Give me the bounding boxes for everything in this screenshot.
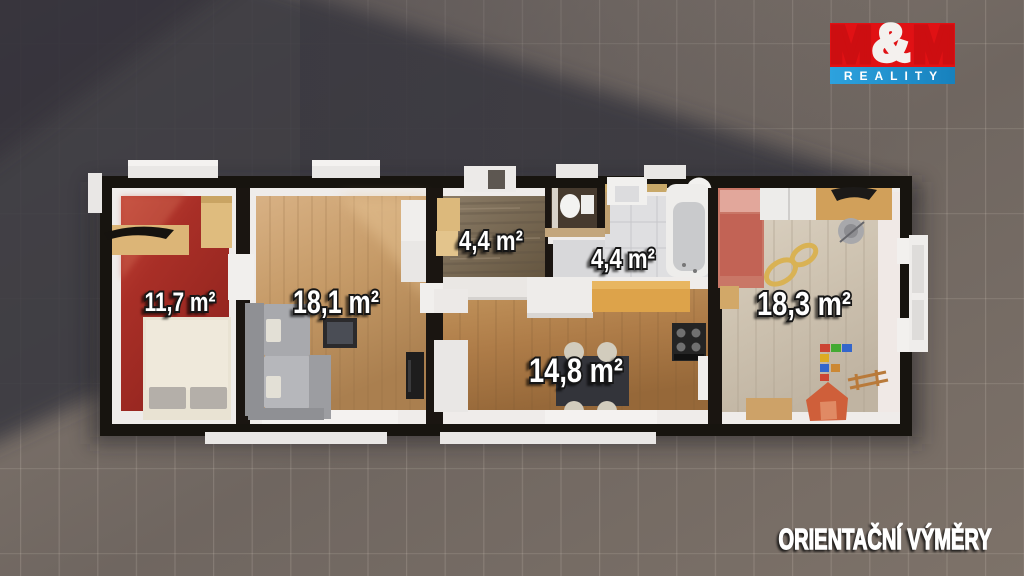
svg-text:14,8 m²: 14,8 m² — [529, 352, 623, 390]
svg-text:18,3 m²: 18,3 m² — [757, 285, 851, 322]
svg-text:ORIENTAČNÍ VÝMĚRY: ORIENTAČNÍ VÝMĚRY — [779, 522, 992, 556]
svg-text:M: M — [830, 16, 872, 73]
svg-text:&: & — [872, 15, 910, 73]
svg-text:4,4 m²: 4,4 m² — [459, 225, 523, 256]
svg-text:4,4 m²: 4,4 m² — [591, 243, 655, 274]
svg-text:18,1 m²: 18,1 m² — [293, 284, 379, 320]
svg-text:REALITY: REALITY — [844, 69, 944, 83]
svg-text:M: M — [913, 16, 955, 73]
svg-text:11,7 m²: 11,7 m² — [145, 287, 216, 317]
